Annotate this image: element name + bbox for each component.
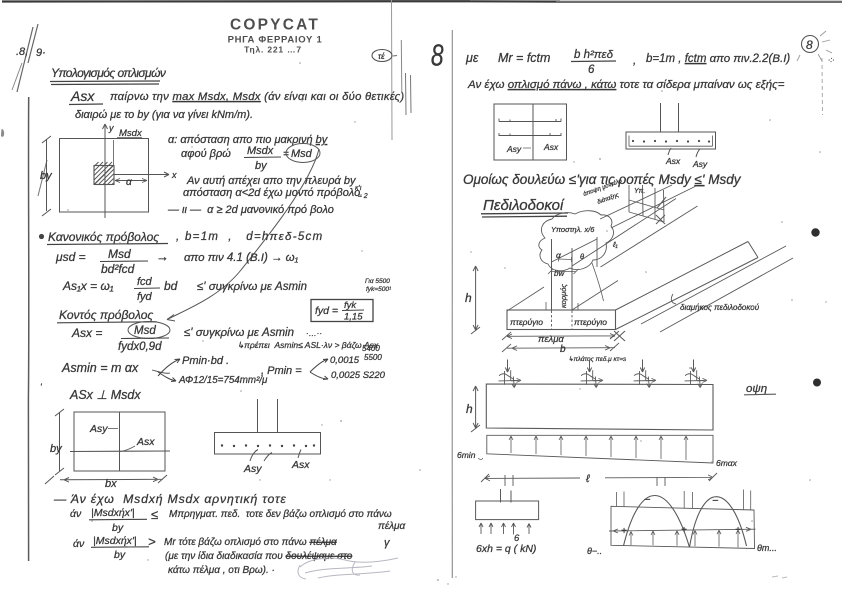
svg-text:bx: bx: [105, 478, 117, 490]
svg-text:με: με: [465, 51, 479, 65]
svg-text:fcd: fcd: [137, 276, 153, 288]
svg-text:≤' συγκρίνω με Asmin: ≤' συγκρίνω με Asmin: [184, 327, 294, 339]
svg-text:Αν αυτή απέχει απο την πλευρά: Αν αυτή απέχει απο την πλευρά by: [186, 175, 357, 187]
svg-text:Αν έχω οπλισμό πάνω , κάτω τοτ: Αν έχω οπλισμό πάνω , κάτω τοτε τα σίδερ…: [467, 79, 785, 91]
svg-text:As₁x = ω₁: As₁x = ω₁: [62, 279, 114, 293]
svg-text:fyd =: fyd =: [315, 305, 338, 317]
svg-text:, b=1m , d=hπεδ-5cm: , b=1m , d=hπεδ-5cm: [176, 231, 323, 243]
svg-text:διαμήκος πεδιλοδοκού: διαμήκος πεδιλοδοκού: [680, 303, 760, 312]
svg-text:b: b: [560, 344, 566, 355]
svg-text:Asy: Asy: [506, 144, 522, 154]
svg-text:Υπ.: Υπ.: [634, 188, 645, 195]
svg-text:ΑΦ12/15=754mm²/μ: ΑΦ12/15=754mm²/μ: [178, 375, 268, 386]
svg-text:κ'ι: κ'ι: [355, 185, 362, 192]
svg-text:>: >: [148, 534, 156, 549]
svg-text:Κανονικός πρόβολος: Κανονικός πρόβολος: [48, 230, 159, 244]
svg-text:Asmin = m αx: Asmin = m αx: [61, 361, 139, 375]
svg-text:h: h: [465, 291, 472, 305]
svg-text:θm...: θm...: [757, 543, 777, 553]
svg-text:— Άν έχω Msdxή Msdx αρνητική: — Άν έχω Msdxή Msdx αρνητική τοτε: [53, 492, 287, 506]
svg-text:bw: bw: [554, 269, 565, 278]
svg-text:by: by: [255, 160, 268, 172]
svg-text:Asy: Asy: [243, 463, 262, 475]
svg-text:6min: 6min: [457, 450, 476, 460]
svg-text:α: α: [556, 250, 562, 260]
svg-text:Msdx: Msdx: [247, 145, 274, 157]
svg-text:θ: θ: [580, 252, 584, 261]
svg-text:fyd: fyd: [137, 291, 153, 303]
svg-text:|Msdxήx'|: |Msdxήx'|: [91, 507, 135, 519]
svg-text:8: 8: [431, 38, 444, 72]
svg-text:by: by: [50, 443, 63, 455]
svg-text:Asx: Asx: [136, 436, 155, 448]
svg-text:άν: άν: [73, 538, 85, 550]
svg-text:Pmin·bd .: Pmin·bd .: [182, 355, 229, 367]
svg-text:9·: 9·: [36, 47, 46, 59]
svg-text:≤' συγκρίνω με Asmin: ≤' συγκρίνω με Asmin: [197, 281, 307, 293]
svg-text:−: −: [712, 495, 719, 507]
svg-text:Μπρηγματ. πεδ. τοτε δεν βάζω: Μπρηγματ. πεδ. τοτε δεν βάζω οπλισμό στο…: [169, 508, 392, 520]
svg-text:fyk=500¹: fyk=500¹: [366, 286, 392, 293]
svg-text:Asy: Asy: [692, 159, 708, 169]
svg-text:by: by: [40, 170, 53, 182]
svg-text:κορμός: κορμός: [559, 284, 568, 308]
svg-text:άν: άν: [70, 508, 82, 520]
svg-text:— ιι — α ≥ 2d μανονικό πρό βο: — ιι — α ≥ 2d μανονικό πρό βολο: [167, 204, 334, 216]
svg-text:y: y: [108, 123, 114, 133]
svg-text:Πεδιλοδοκοί: Πεδιλοδοκοί: [483, 197, 565, 214]
svg-text:↳πλάτος πεδ.μ κτ=s: ↳πλάτος πεδ.μ κτ=s: [568, 355, 627, 363]
svg-text:κάτω πέλμα , οτι Βρω). ·: κάτω πέλμα , οτι Βρω). ·: [168, 564, 275, 576]
svg-text:ℓ: ℓ: [585, 473, 590, 485]
svg-text:ℓ₁: ℓ₁: [612, 240, 618, 249]
svg-text:↳πρέπει Asmin≤ ASL·λν > βάζω: ↳πρέπει Asmin≤ ASL·λν > βάζω Asx: [237, 340, 379, 350]
svg-text:Asx: Asx: [291, 459, 310, 471]
svg-text:fydx0,9d: fydx0,9d: [118, 341, 162, 353]
svg-text:,: ,: [633, 53, 636, 67]
svg-text:απόσταση α<2d έχω μοντό πρόβολ: απόσταση α<2d έχω μοντό πρόβολο: [183, 187, 360, 199]
svg-text:πέλμα: πέλμα: [378, 520, 405, 532]
svg-text:x: x: [171, 170, 177, 180]
svg-text:Asx: Asx: [70, 88, 95, 104]
svg-text:Msd: Msd: [134, 325, 156, 337]
svg-text:τέ: τέ: [378, 52, 385, 61]
svg-text:οψη: οψη: [746, 383, 767, 395]
svg-text:≤: ≤: [151, 507, 158, 522]
svg-text:, Pmin =: , Pmin =: [261, 365, 302, 377]
svg-text:απο πιν 4.1 (Β.Ι) → ω₁: απο πιν 4.1 (Β.Ι) → ω₁: [184, 252, 299, 264]
svg-text:+: +: [621, 526, 627, 537]
svg-text:1,15: 1,15: [344, 312, 363, 323]
svg-text:b h²πεδ: b h²πεδ: [574, 49, 614, 61]
svg-text:−: −: [644, 494, 651, 506]
svg-text:Asx: Asx: [665, 156, 681, 166]
svg-text:Asx =: Asx =: [71, 326, 102, 340]
svg-text:Mr = fctm: Mr = fctm: [498, 51, 550, 65]
svg-text:h: h: [466, 402, 473, 416]
svg-text:διαιρώ με το by (για να γίνει: διαιρώ με το by (για να γίνει kNm/m).: [75, 109, 253, 121]
svg-text:6xh = q ( kN): 6xh = q ( kN): [476, 543, 536, 555]
svg-text:Υποστηλ. x/6: Υποστηλ. x/6: [551, 225, 595, 234]
svg-text:Υπολογισμός οπλισμών: Υπολογισμός οπλισμών: [51, 66, 166, 80]
svg-text:Για 5500: Για 5500: [365, 278, 390, 285]
svg-text:→: →: [156, 249, 169, 264]
svg-text:+: +: [681, 525, 687, 536]
svg-text:Mr τότε βάζω οπλισμό στο πάνω: Mr τότε βάζω οπλισμό στο πάνω πέλμα: [164, 536, 337, 548]
svg-text:5500: 5500: [364, 353, 382, 362]
svg-text:Msd: Msd: [108, 247, 131, 261]
svg-text:αφού βρώ: αφού βρώ: [181, 148, 231, 160]
svg-text:μsd =: μsd =: [55, 250, 86, 264]
svg-text:·…··: ·…··: [306, 329, 322, 338]
svg-text:γ: γ: [384, 537, 391, 549]
svg-text:Asx: Asx: [543, 142, 559, 152]
svg-text:|Msdxήx'|: |Msdxήx'|: [93, 535, 137, 547]
svg-text:Asy: Asy: [89, 423, 108, 435]
svg-text:': ': [40, 382, 42, 392]
svg-text:Κοντός πρόβολος: Κοντός πρόβολος: [59, 308, 153, 322]
svg-text:πτερύγιο: πτερύγιο: [574, 317, 607, 327]
svg-text:.8,: .8,: [16, 46, 28, 58]
svg-text:·:·: ·:·: [828, 57, 835, 64]
svg-text:6mαx: 6mαx: [716, 458, 738, 468]
svg-text:Msd: Msd: [291, 148, 313, 160]
svg-text:bd²fcd: bd²fcd: [101, 262, 135, 276]
svg-text:by: by: [114, 549, 126, 561]
svg-text:(με την ίδια διαδικασία που δο: (με την ίδια διαδικασία που δουλέψαμε στ…: [165, 550, 353, 562]
svg-text:fyk: fyk: [344, 300, 357, 311]
svg-text:8: 8: [806, 38, 813, 52]
svg-text:θ−..: θ−..: [587, 546, 602, 556]
svg-text:5400: 5400: [362, 344, 380, 353]
svg-text:0,0025 S220: 0,0025 S220: [331, 370, 386, 381]
svg-text:0,0015: 0,0015: [330, 355, 360, 366]
svg-text:ASx ⊥ Msdx: ASx ⊥ Msdx: [69, 388, 141, 402]
svg-text:by: by: [112, 522, 124, 534]
svg-text:πτερύγιο: πτερύγιο: [510, 317, 543, 327]
svg-text:COPYCAT: COPYCAT: [230, 17, 320, 34]
svg-text:b=1m , fctm απο πιν.2.2(Β.Ι): b=1m , fctm απο πιν.2.2(Β.Ι): [646, 53, 790, 65]
svg-text:6: 6: [588, 64, 595, 76]
svg-text:διάταξης: διάταξης: [597, 192, 620, 205]
svg-text:bd: bd: [164, 279, 178, 293]
svg-text:≈ 2: ≈ 2: [358, 193, 368, 200]
svg-text:Τηλ. 221 …7: Τηλ. 221 …7: [244, 45, 302, 55]
svg-text:παίρνω την max Msdx, Msdx (άν: παίρνω την max Msdx, Msdx (άν είναι και …: [110, 91, 404, 103]
svg-text:α: α: [126, 177, 132, 188]
